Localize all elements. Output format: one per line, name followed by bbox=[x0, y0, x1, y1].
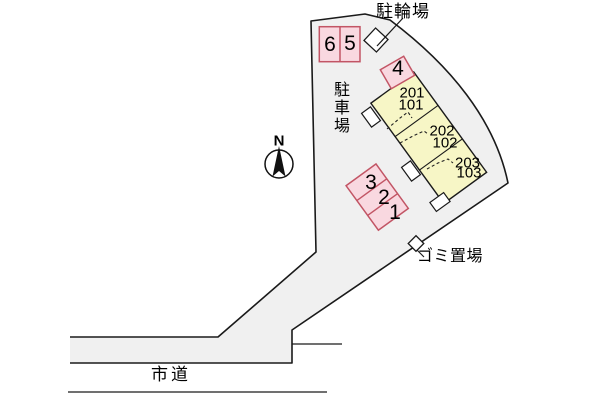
city-road-label: 市道 bbox=[151, 366, 191, 383]
bicycle-parking-label: 駐輪場 bbox=[376, 3, 430, 20]
parking-space-number-1: 1 bbox=[389, 201, 401, 225]
car-parking-label: 駐車場 bbox=[331, 81, 347, 135]
site-plan-drawing bbox=[0, 0, 600, 400]
unit-number-102: 102 bbox=[432, 134, 457, 151]
parking-space-number-3: 3 bbox=[365, 171, 377, 195]
unit-number-103: 103 bbox=[456, 165, 481, 182]
site-plan-canvas: N 駐輪場 駐車場 ゴミ置場 市道 6 5 4 3 2 1 201 101 20… bbox=[0, 0, 600, 400]
parking-space-number-5: 5 bbox=[344, 32, 356, 56]
garbage-area-label: ゴミ置場 bbox=[417, 249, 483, 265]
parking-space-number-6: 6 bbox=[324, 33, 336, 57]
unit-number-101: 101 bbox=[398, 96, 423, 113]
parking-space-number-2: 2 bbox=[378, 186, 390, 210]
compass bbox=[265, 146, 293, 178]
parking-space-number-4: 4 bbox=[392, 57, 404, 81]
compass-north-label: N bbox=[274, 134, 285, 149]
